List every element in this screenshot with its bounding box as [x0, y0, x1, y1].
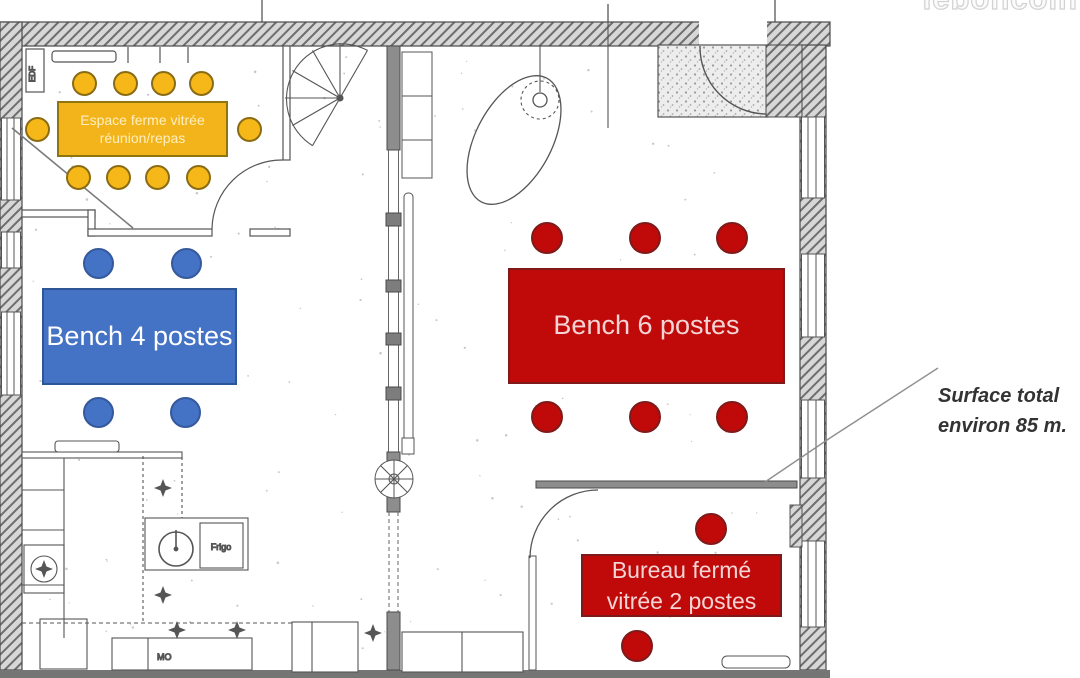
surface-note-line2: environ 85 m. — [938, 411, 1080, 441]
seat-marker-meeting-room — [237, 117, 262, 142]
seat-marker-meeting-room — [106, 165, 131, 190]
seat-marker-meeting-room — [186, 165, 211, 190]
seat-marker-bench6 — [629, 401, 661, 433]
edf-cabinet-label: EDF — [28, 66, 37, 82]
seat-marker-bench4 — [83, 397, 114, 428]
seat-marker-meeting-room — [145, 165, 170, 190]
seat-marker-bureau — [621, 630, 653, 662]
zone-meeting-room: Espace ferme vitrée réunion/repas — [57, 101, 228, 157]
radiator-kitchen — [55, 441, 119, 452]
seat-marker-meeting-room — [66, 165, 91, 190]
zone-meeting-room-label-line1: Espace ferme vitrée — [80, 112, 205, 128]
surface-note: Surface total environ 85 m. — [938, 381, 1080, 441]
zone-bench-4-label: Bench 4 postes — [46, 319, 232, 355]
seat-marker-bench6 — [716, 401, 748, 433]
bottom-furniture — [292, 622, 523, 672]
seat-marker-bench6 — [716, 222, 748, 254]
bureau-door-arc — [530, 490, 598, 558]
spiral-staircase — [285, 43, 368, 146]
seat-marker-meeting-room — [151, 71, 176, 96]
left-wall-windows — [2, 118, 21, 395]
fan-symbol — [375, 460, 413, 498]
central-partition — [386, 46, 432, 670]
seat-marker-meeting-room — [25, 117, 50, 142]
zone-bureau-label-line2: vitrée 2 postes — [607, 588, 757, 614]
fridge-label: Frigo — [211, 542, 232, 552]
zone-bureau-ferme: Bureau fermé vitrée 2 postes — [581, 554, 782, 617]
entrance-vestibule — [658, 45, 802, 117]
seat-marker-bench6 — [629, 222, 661, 254]
zone-bench-6-postes: Bench 6 postes — [508, 268, 785, 384]
seat-marker-bench6 — [531, 401, 563, 433]
watermark-leboncoin: leboncoin — [885, 0, 1080, 15]
seat-marker-meeting-room — [113, 71, 138, 96]
seat-marker-meeting-room — [72, 71, 97, 96]
seat-marker-meeting-room — [189, 71, 214, 96]
radiator-bureau — [722, 656, 790, 668]
seat-marker-bench4 — [171, 248, 202, 279]
microwave-label: MO — [157, 652, 172, 662]
seat-marker-bench6 — [531, 222, 563, 254]
radiator-meeting-room — [52, 51, 116, 62]
meeting-room-door-arc — [212, 160, 283, 229]
zone-bench-6-label: Bench 6 postes — [553, 308, 739, 344]
floorplan-page: EDF — [0, 0, 1080, 678]
surface-note-line1: Surface total — [938, 381, 1080, 411]
zone-bureau-label-line1: Bureau fermé — [612, 557, 751, 583]
seat-marker-bureau — [695, 513, 727, 545]
watermark-clip: leboncoin — [885, 0, 1080, 15]
zone-meeting-room-label-line2: réunion/repas — [100, 130, 186, 146]
seat-marker-bench4 — [170, 397, 201, 428]
seat-marker-bench4 — [83, 248, 114, 279]
zone-bench-4-postes: Bench 4 postes — [42, 288, 237, 385]
